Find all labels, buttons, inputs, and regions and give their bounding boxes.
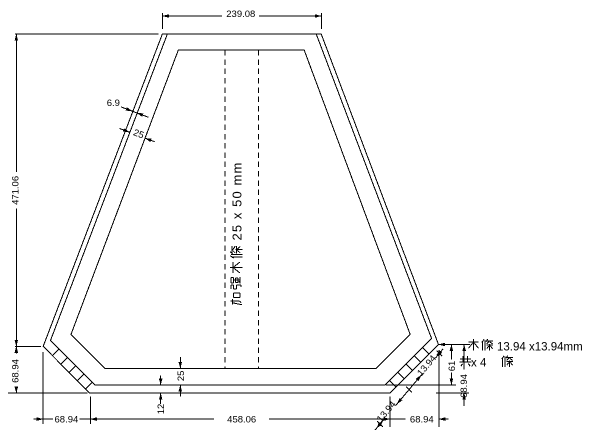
svg-text:239.08: 239.08 <box>226 9 255 20</box>
svg-text:x 4: x 4 <box>471 358 487 370</box>
svg-text:25: 25 <box>176 371 187 382</box>
svg-text:25 x 50 mm: 25 x 50 mm <box>230 162 245 241</box>
svg-text:6.9: 6.9 <box>107 98 120 109</box>
svg-text:61: 61 <box>447 361 458 372</box>
svg-text:68.94: 68.94 <box>55 415 79 426</box>
svg-text:471.06: 471.06 <box>11 176 22 205</box>
svg-text:13.94 x13.94mm: 13.94 x13.94mm <box>497 341 583 353</box>
svg-text:12: 12 <box>156 404 167 415</box>
svg-text:68.94: 68.94 <box>410 415 434 426</box>
svg-text:458.06: 458.06 <box>227 415 256 426</box>
svg-text:68.94: 68.94 <box>459 374 470 398</box>
svg-text:68.94: 68.94 <box>11 359 22 383</box>
